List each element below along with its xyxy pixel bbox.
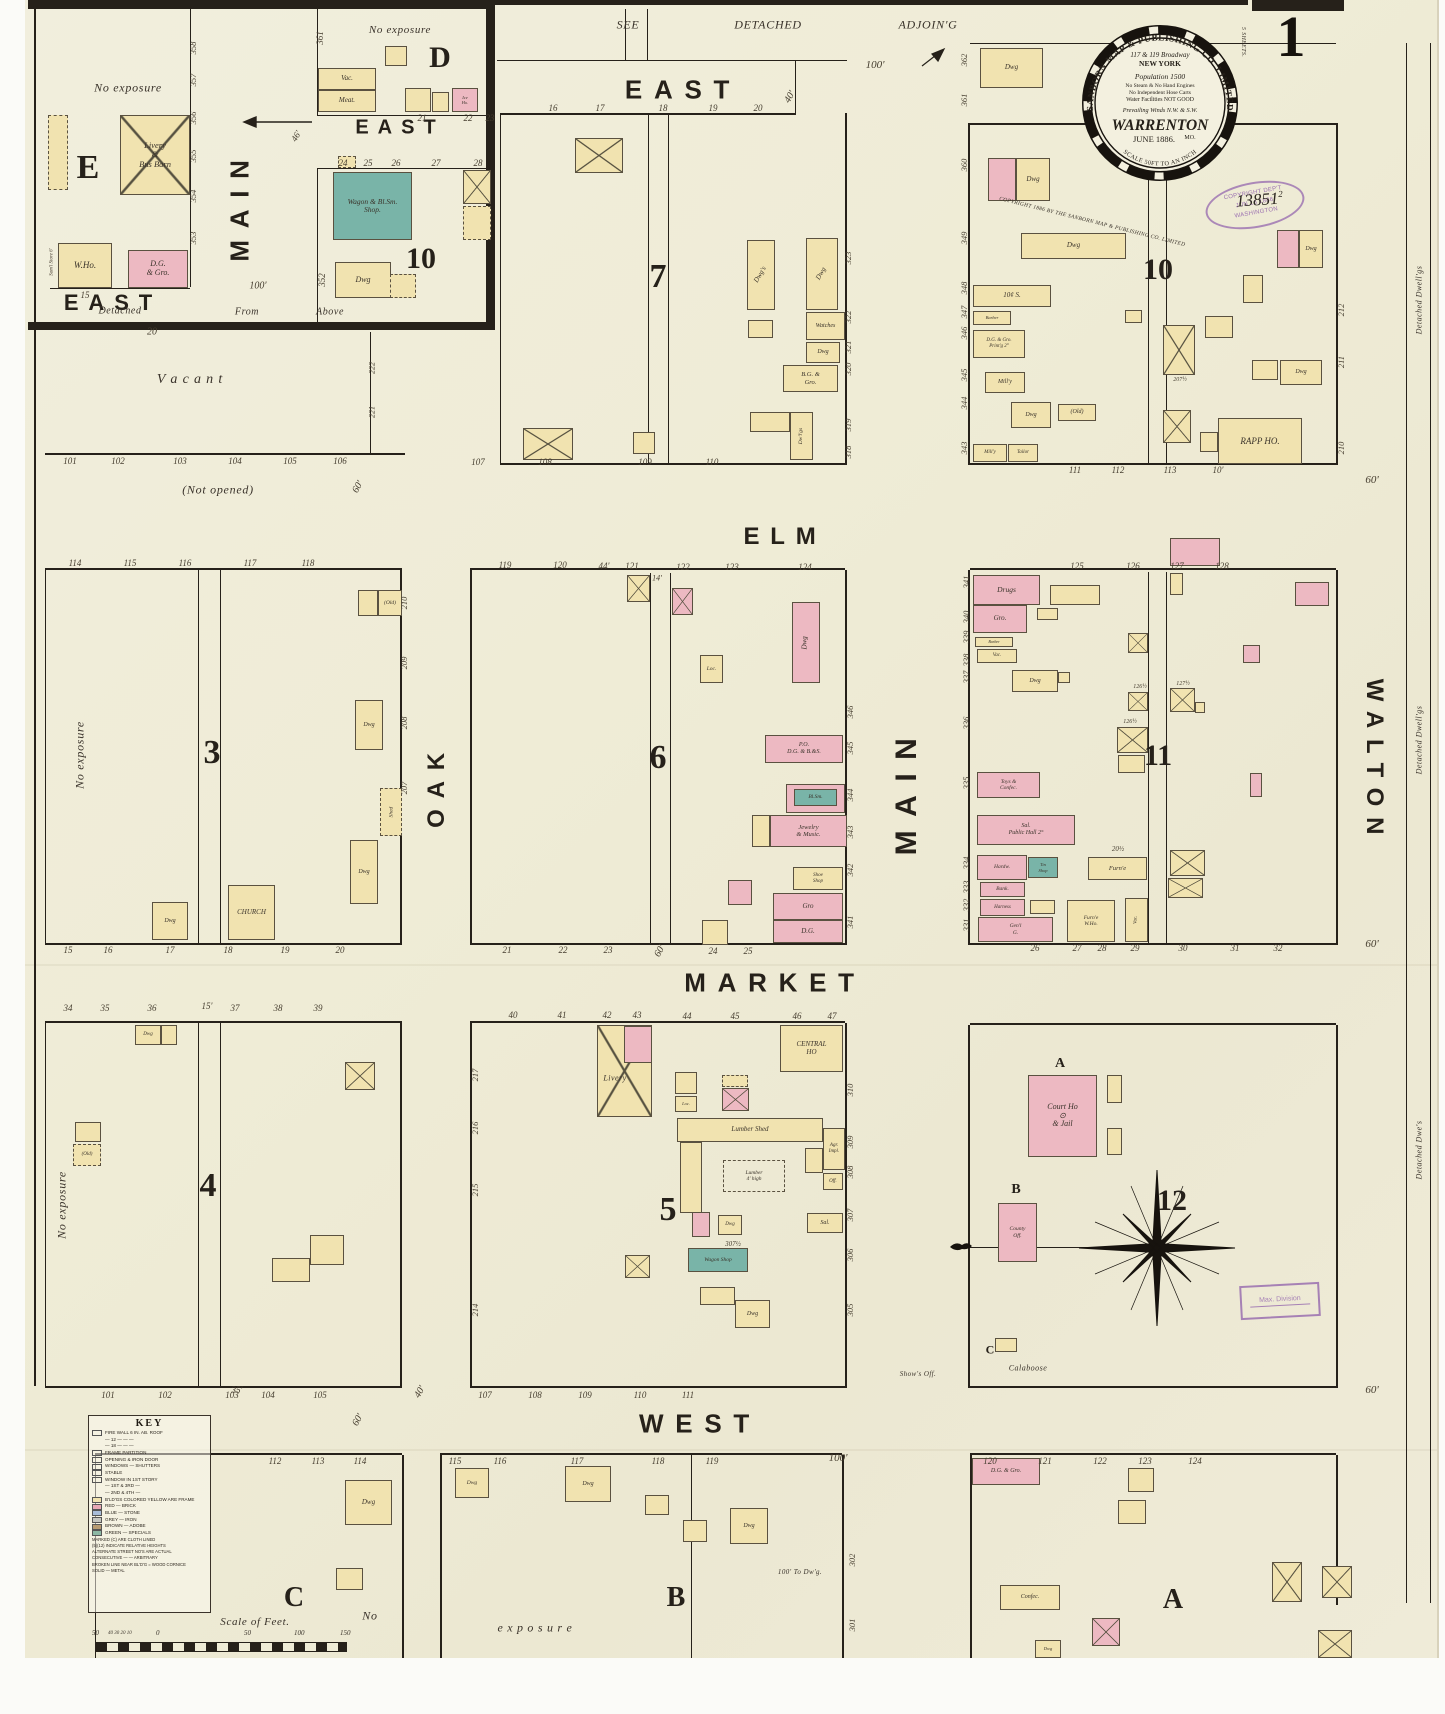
building: Dwg <box>335 262 391 298</box>
building <box>633 432 655 454</box>
map-key-legend: KEY FIRE WALL 6 IN. AB. ROOF— 12 — — —— … <box>88 1415 211 1613</box>
building-label: Dwg <box>1295 369 1306 376</box>
lot-number: 310 <box>845 1084 855 1097</box>
map-line <box>486 0 495 330</box>
lot-number: Sam'l Store 6' <box>50 248 55 276</box>
block-number: 10 <box>406 242 436 276</box>
building: Loc. <box>675 1096 697 1112</box>
map-annotation: No exposure <box>55 1171 70 1239</box>
building: Meat. <box>318 90 376 112</box>
building <box>75 1122 101 1142</box>
building: Barber <box>973 311 1011 325</box>
building: Dwg <box>152 902 188 940</box>
block-number: B <box>667 1582 686 1614</box>
scale-tick: 50 <box>244 1629 251 1637</box>
building <box>1243 275 1263 303</box>
key-color-swatch <box>92 1517 102 1523</box>
building <box>683 1520 707 1542</box>
building: B.G. & Gro. <box>783 365 838 392</box>
building <box>358 590 378 616</box>
lot-number: 332 <box>961 899 971 912</box>
building: Vac. <box>977 649 1017 663</box>
lot-number: 100' <box>829 1452 848 1464</box>
map-line <box>440 1455 442 1658</box>
lot-number: 354 <box>188 190 198 203</box>
lot-number: 361 <box>959 94 969 107</box>
map-annotation: Detached Dwell'gs <box>1415 266 1424 335</box>
building: Furn'e <box>1088 857 1147 880</box>
lot-number: 361 <box>315 31 325 45</box>
lot-number: 15 <box>81 290 90 300</box>
building-label: 10¢ S. <box>1003 292 1021 300</box>
building: Dwg <box>565 1466 611 1502</box>
key-symbol <box>92 1430 102 1436</box>
building-label: B.G. & Gro. <box>801 371 820 386</box>
building: Dwg <box>1021 233 1126 259</box>
building-label: Drugs <box>997 586 1016 594</box>
building <box>1058 672 1070 683</box>
lot-number: 44' <box>599 561 610 571</box>
map-line <box>45 568 402 570</box>
building <box>385 46 407 66</box>
map-line <box>1336 123 1338 465</box>
building-label: Dw'l'gs <box>798 428 804 444</box>
block-number: 6 <box>650 739 667 777</box>
building: Confec. <box>1000 1585 1060 1610</box>
building: Court Ho ⊙ & Jail <box>1028 1075 1097 1157</box>
building-label: Toys & Confec. <box>1000 779 1017 791</box>
map-annotation: Detached <box>98 306 141 317</box>
building <box>345 1062 375 1090</box>
lot-number: 115 <box>124 558 137 568</box>
lot-number: 60' <box>1365 474 1378 486</box>
building: (Old) <box>1058 404 1096 421</box>
building: Dwg <box>1011 402 1051 428</box>
division-stamp: Max. Division <box>1239 1282 1321 1320</box>
building: Toys & Confec. <box>977 772 1040 798</box>
lot-number: 21 <box>503 945 512 955</box>
lot-number: 337 <box>961 671 971 684</box>
building: Dwg <box>1299 230 1323 268</box>
key-color-row: BLUE — STONE <box>92 1510 207 1517</box>
lot-number: 28 <box>1098 943 1107 953</box>
key-title: KEY <box>92 1418 207 1429</box>
building <box>1118 1500 1146 1524</box>
building: Dwg <box>730 1508 768 1544</box>
scale-tick: 50 <box>92 1629 99 1637</box>
scale-bar <box>95 1642 347 1652</box>
building: (Old) <box>73 1144 101 1166</box>
building <box>702 920 728 945</box>
lot-number: 119 <box>499 560 512 570</box>
map-line <box>647 9 648 60</box>
building-label: (Old) <box>82 1152 93 1158</box>
key-color-row: B'LD'GS COLORED YELLOW ARE FRAME <box>92 1497 207 1504</box>
lot-number: 210 <box>399 597 409 610</box>
building: Harness <box>980 899 1025 916</box>
accession-number: 138512 <box>1235 188 1283 211</box>
block-number: C <box>986 1343 995 1358</box>
key-color-row: BROWN — ADOBE <box>92 1523 207 1530</box>
key-row: — 2ND & 4TH — <box>92 1490 207 1497</box>
building: Dwg <box>1012 670 1058 692</box>
building: Sal. Public Hall 2° <box>977 815 1075 845</box>
map-line <box>1406 43 1407 1603</box>
lot-number: 102 <box>158 1390 172 1400</box>
key-color-swatch <box>92 1497 102 1503</box>
building-label: Tin Shop <box>1039 862 1048 872</box>
map-line <box>1336 1025 1338 1388</box>
lot-number: 341 <box>845 916 855 929</box>
building: Watches <box>806 312 845 340</box>
stamp-state: MO. <box>1184 135 1196 141</box>
lot-number: 103 <box>173 456 187 466</box>
lot-number: 319 <box>843 419 853 432</box>
lot-number: 18 <box>224 945 233 955</box>
map-line <box>317 168 318 322</box>
building <box>680 1142 702 1213</box>
lot-number: 23 <box>486 113 495 123</box>
building-label: Dwg <box>1025 412 1036 419</box>
lot-number: 115 <box>449 1456 462 1466</box>
lot-number: 126½ <box>1133 684 1147 690</box>
map-line <box>500 113 501 463</box>
lot-number: 41 <box>558 1010 567 1020</box>
street-name: MARKET <box>684 968 865 999</box>
lot-number: 34 <box>64 1003 73 1013</box>
building-label: Dwg <box>802 636 810 649</box>
building <box>1125 310 1142 323</box>
lot-number: 124 <box>798 562 812 572</box>
building-label: Sal. <box>820 1220 829 1227</box>
key-row-text: — 1ST & 3RD — <box>105 1483 140 1490</box>
block-number: 7 <box>650 258 667 296</box>
scale-tick: 150 <box>340 1629 351 1637</box>
building <box>1128 692 1148 711</box>
map-line <box>845 113 847 465</box>
building-label: Livery & Bus Barn <box>139 141 171 170</box>
key-symbol <box>92 1470 102 1476</box>
building <box>390 274 416 298</box>
building-label: Loc. <box>682 1101 690 1106</box>
building: Mill'y <box>973 444 1007 462</box>
building-label: Dwg's <box>753 265 769 284</box>
building: Dw'l'gs <box>790 412 813 460</box>
building-label: W.Ho. <box>74 260 96 270</box>
map-line <box>28 322 495 330</box>
key-color-row: RED — BRICK <box>92 1503 207 1510</box>
lot-number: 125 <box>1070 561 1084 571</box>
building: Agr. Impl. <box>823 1128 845 1170</box>
lot-number: 339 <box>961 631 971 644</box>
block-number: E <box>77 149 100 187</box>
building-label: Off. <box>829 1179 837 1185</box>
key-color-row: GREEN — SPECIALS <box>92 1530 207 1537</box>
lot-number: 123 <box>1138 1456 1152 1466</box>
lot-number: 107 <box>471 457 485 467</box>
building: Wagon Shop <box>688 1248 748 1272</box>
map-line <box>400 570 402 945</box>
lot-number: 20½ <box>1112 845 1124 853</box>
lot-number: 24 <box>709 946 718 956</box>
lot-number: 356 <box>188 112 198 125</box>
building-label: Tailor <box>1017 450 1029 456</box>
building <box>748 320 773 338</box>
building <box>700 1287 735 1305</box>
building: Dwg <box>350 840 378 904</box>
building: Dwg <box>806 238 838 310</box>
map-annotation: SEE <box>617 18 640 33</box>
lot-number: 343 <box>959 442 969 455</box>
lot-number: 107 <box>478 1390 492 1400</box>
building <box>625 1255 650 1278</box>
building-label: Bl.Sm. <box>808 794 822 800</box>
lot-number: 345 <box>845 742 855 755</box>
map-line <box>470 568 845 570</box>
lot-number: 331 <box>961 919 971 932</box>
lot-number: 128 <box>1215 561 1229 571</box>
building: Wagon & Bl.Sm. Shop. <box>333 172 412 240</box>
building: Vac. <box>318 68 376 90</box>
lot-number: 343 <box>845 826 855 839</box>
lot-number: 100' <box>249 281 266 292</box>
map-line <box>470 570 472 945</box>
map-annotation: No exposure <box>94 81 162 96</box>
building-label: Dwg <box>743 1523 754 1530</box>
lot-number: 36 <box>148 1003 157 1013</box>
building-label: RAPP HO. <box>1240 436 1279 446</box>
map-line <box>45 1386 402 1388</box>
map-line <box>795 60 796 115</box>
lot-number: 32 <box>1274 943 1283 953</box>
building: Gen'l G. <box>978 917 1053 942</box>
building: Bl.Sm. <box>794 789 837 806</box>
map-line <box>670 573 671 943</box>
building-label: Jewelry & Music. <box>796 824 820 839</box>
lot-number: 345 <box>959 369 969 382</box>
building: D.G. & Gro. <box>128 250 188 288</box>
key-row: FRAME PARTITION <box>92 1450 207 1457</box>
building <box>675 1072 697 1094</box>
building-label: Lumber 4' high <box>745 1170 762 1182</box>
lot-number: 23 <box>604 945 613 955</box>
building <box>1168 878 1203 898</box>
building: P.O. D.G. & B.&S. <box>765 735 843 763</box>
building: Dwg <box>735 1300 770 1328</box>
street-name: OAK <box>423 742 451 828</box>
lot-number: 211 <box>1336 356 1346 368</box>
lot-number: 101 <box>63 456 77 466</box>
lot-number: 340 <box>961 611 971 624</box>
map-line <box>1336 570 1338 945</box>
building <box>1322 1566 1352 1598</box>
lot-number: 16 <box>549 103 558 113</box>
building-label: Dwg <box>358 869 369 876</box>
lot-number: 357 <box>188 74 198 87</box>
map-line <box>970 568 1336 570</box>
building <box>432 92 449 112</box>
publisher-stamp-seal: SANBORN MAP & PUBLISHING CO. LIMITED 117… <box>1078 21 1242 185</box>
map-line <box>845 570 847 945</box>
building <box>1170 850 1205 876</box>
building-label: Dwg <box>467 1480 477 1486</box>
street-name: MAIN <box>225 148 256 261</box>
street-name: ELM <box>743 523 826 551</box>
building-label: Dwg <box>143 1032 152 1038</box>
key-row-text: RED — BRICK <box>105 1503 136 1510</box>
building <box>1128 633 1148 653</box>
lot-number: 30 <box>1179 943 1188 953</box>
lot-number: 105 <box>313 1390 327 1400</box>
lot-number: 19 <box>281 945 290 955</box>
map-line <box>691 1455 692 1658</box>
lot-number: 60' <box>1365 1384 1378 1396</box>
building <box>722 1075 748 1087</box>
lot-number: 111 <box>1069 465 1081 475</box>
map-annotation: Detached Dwell'gs <box>1415 706 1424 775</box>
street-name: MAIN <box>890 725 924 856</box>
lot-number: 358 <box>188 42 198 55</box>
building <box>1163 325 1195 375</box>
lot-number: 209 <box>399 657 409 670</box>
key-color-swatch <box>92 1530 102 1536</box>
map-line <box>842 1455 844 1658</box>
building-label: Dwg <box>363 722 374 729</box>
key-row: — 12 — — — <box>92 1437 207 1444</box>
stamp-water: Water Facilities NOT GOOD <box>1126 97 1194 103</box>
building: RAPP HO. <box>1218 418 1302 464</box>
building: Dwg <box>1280 360 1322 385</box>
map-line <box>317 168 495 169</box>
key-color-swatch <box>92 1504 102 1510</box>
building: Shed <box>380 788 402 836</box>
lot-number: 355 <box>188 150 198 163</box>
lot-number: 37 <box>231 1003 240 1013</box>
lot-number: 126½ <box>1123 719 1137 725</box>
map-line <box>1430 43 1431 1603</box>
lot-number: 207 <box>399 782 409 795</box>
lot-number: 27 <box>1073 943 1082 953</box>
stamp-hose: No Independent Hose Carts <box>1129 90 1191 96</box>
building: Dwg <box>980 48 1043 88</box>
lot-number: 120 <box>983 1456 997 1466</box>
building <box>1195 702 1205 713</box>
building <box>575 138 623 173</box>
building-label: Dwg <box>1044 1646 1053 1651</box>
building-label: Dwg <box>1305 246 1316 253</box>
building: Sal. <box>807 1213 843 1233</box>
building-label: Harness <box>994 905 1011 911</box>
building: D.G. & Gro. <box>972 1458 1040 1485</box>
street-name: WEST <box>639 1409 761 1440</box>
key-row-text: WINDOW IN 1ST STORY <box>105 1477 158 1484</box>
map-line <box>402 1455 404 1658</box>
lot-number: 124 <box>1188 1456 1202 1466</box>
building: County Off. <box>998 1203 1037 1262</box>
building-label: P.O. D.G. & B.&S. <box>787 742 821 755</box>
key-row-text: WINDOWS — SHUTTERS <box>105 1463 160 1470</box>
lot-number: 215 <box>470 1184 480 1197</box>
building <box>722 1088 749 1111</box>
building: Barber <box>975 637 1013 647</box>
building-label: Barber <box>988 640 999 644</box>
building: Furn'e W.Ho. <box>1067 900 1115 942</box>
building <box>1030 900 1055 914</box>
lot-number: 362 <box>959 54 969 67</box>
building-label: D.G. & Gro. Print'g 2° <box>986 338 1011 349</box>
map-line <box>668 115 669 463</box>
building-label: Wagon & Bl.Sm. Shop. <box>348 198 398 215</box>
building: Dwg <box>345 1480 392 1525</box>
key-row: OPENING & IRON DOOR <box>92 1457 207 1464</box>
map-line <box>494 0 1248 5</box>
lot-number: 27 <box>432 158 441 168</box>
scale-tick: 0 <box>156 1629 160 1637</box>
lot-number: 352 <box>317 273 327 287</box>
lot-number: 114 <box>69 558 82 568</box>
key-symbol <box>92 1477 102 1483</box>
lot-number: 102 <box>111 456 125 466</box>
building <box>161 1025 177 1045</box>
building-label: Dwg <box>817 349 828 356</box>
lot-number: 127½ <box>1176 681 1190 687</box>
block-number: A <box>1055 1056 1065 1072</box>
lot-number: 35 <box>101 1003 110 1013</box>
stamp-date: JUNE 1886. <box>1133 134 1175 144</box>
building-label: Gro <box>802 903 813 911</box>
lot-number: 47 <box>828 1011 837 1021</box>
lot-number: 123 <box>725 562 739 572</box>
map-annotation: DETACHED <box>734 18 802 33</box>
key-row-text: — 2ND & 4TH — <box>105 1490 140 1497</box>
building <box>405 88 431 112</box>
lot-number: 217 <box>470 1069 480 1082</box>
building-label: (Old) <box>384 600 396 606</box>
lot-number: 20 <box>147 327 157 338</box>
building: Ice Ho. <box>452 88 478 112</box>
lot-number: 302 <box>847 1554 857 1567</box>
lot-number: 210 <box>1336 442 1346 455</box>
key-row-text: FRAME PARTITION <box>105 1450 146 1457</box>
division-stamp-text: Max. Division <box>1259 1295 1301 1304</box>
scale-tick: 100 <box>294 1629 305 1637</box>
lot-number: 121 <box>625 561 639 571</box>
lot-number: 360 <box>959 159 969 172</box>
scale-minor-ticks: 40 30 20 10 <box>108 1631 132 1636</box>
map-line <box>45 453 405 455</box>
key-color-swatch <box>92 1524 102 1530</box>
lot-number: 46 <box>793 1011 802 1021</box>
block-number: 11 <box>1144 739 1172 773</box>
key-color-swatch <box>92 1510 102 1516</box>
lot-number: 346 <box>845 706 855 719</box>
map-annotation: No exposure <box>369 24 431 36</box>
lot-number: 10' <box>1213 465 1224 475</box>
building: Livery & Bus Barn <box>120 115 190 195</box>
building-label: Loc. <box>707 666 717 672</box>
lot-number: 212 <box>1336 304 1346 317</box>
map-line <box>28 0 494 9</box>
lot-number: 113 <box>1164 465 1177 475</box>
building-label: Dwg <box>1005 64 1018 72</box>
lot-number: 334 <box>961 857 971 870</box>
map-annotation: No <box>362 1609 377 1624</box>
building <box>1250 773 1262 797</box>
lot-number: 349 <box>959 232 969 245</box>
map-line <box>34 9 36 1386</box>
building-label: Dwg <box>582 1481 593 1488</box>
building <box>1128 1468 1154 1492</box>
